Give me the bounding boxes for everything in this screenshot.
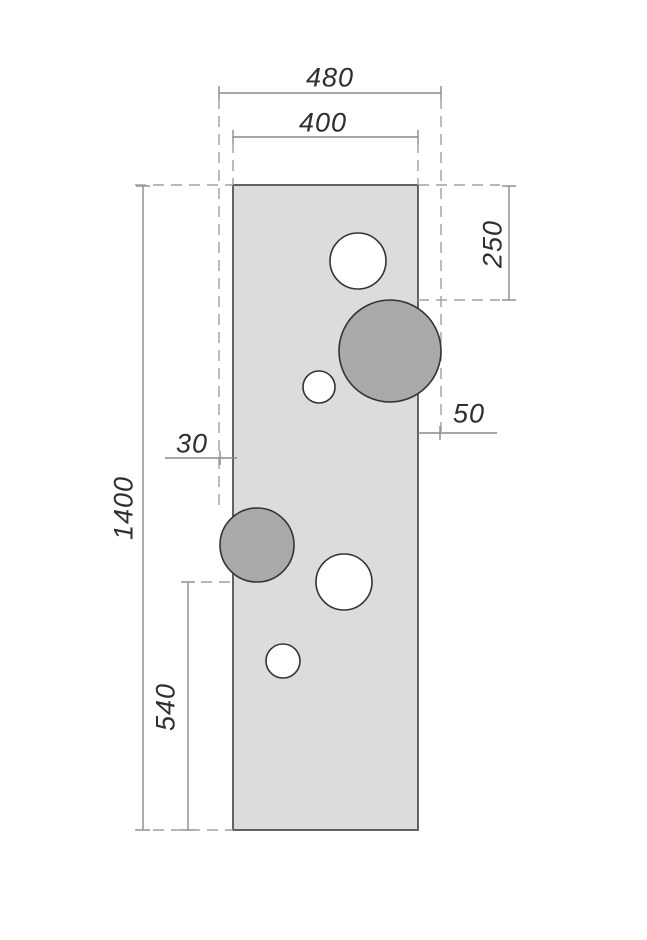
technical-drawing-canvas: 480 400 250 50 30 1400 540 <box>0 0 647 940</box>
filled-circle <box>220 508 294 582</box>
dimension-label-250: 250 <box>480 220 507 268</box>
hole-circle <box>330 233 386 289</box>
dimension-label-30: 30 <box>176 431 208 458</box>
dimension-label-50: 50 <box>453 401 485 428</box>
panel-drawing-svg <box>0 0 647 940</box>
hole-circle <box>303 371 335 403</box>
hole-circle <box>316 554 372 610</box>
dimension-label-480: 480 <box>306 65 354 92</box>
dimension-label-1400: 1400 <box>111 476 138 540</box>
hole-circle <box>266 644 300 678</box>
filled-circle <box>339 300 441 402</box>
dimension-label-400: 400 <box>299 110 347 137</box>
dimension-label-540: 540 <box>153 683 180 731</box>
